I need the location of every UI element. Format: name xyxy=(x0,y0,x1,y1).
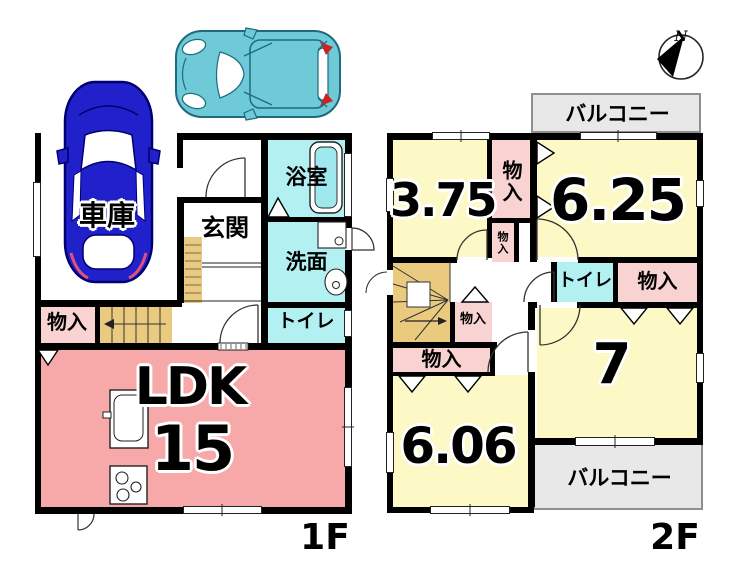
window xyxy=(344,153,352,217)
wall xyxy=(697,207,703,353)
genkan-step-strip xyxy=(184,237,202,303)
f1-stairs xyxy=(100,305,172,345)
f2-stairs xyxy=(393,262,450,342)
wall xyxy=(530,438,575,445)
label-room-625: 6.25 xyxy=(540,170,695,231)
wall xyxy=(345,250,352,310)
washroom-exterior-door xyxy=(352,228,374,250)
blue-car-illustration xyxy=(57,82,160,282)
wall xyxy=(248,343,352,350)
label-room-7: 7 xyxy=(572,336,652,395)
label-ldk-size: 15 xyxy=(122,416,262,481)
kitchen-back-door xyxy=(78,514,94,530)
wall xyxy=(528,302,535,330)
wall xyxy=(95,303,100,345)
label-room-606: 6.06 xyxy=(388,420,528,473)
window xyxy=(344,387,352,467)
wall xyxy=(35,300,182,307)
label-closet-hall-small: 物入 xyxy=(453,313,493,327)
wall xyxy=(35,133,41,182)
wall xyxy=(578,257,703,263)
wall xyxy=(530,133,537,262)
label-closet-upper-small: 物入 xyxy=(497,226,508,260)
label-room-375: 3.75 xyxy=(390,176,490,224)
compass-north-label: N xyxy=(671,30,691,45)
stairs-window-arc xyxy=(366,272,387,293)
teal-car-illustration xyxy=(176,28,340,120)
wall xyxy=(177,197,262,203)
wall xyxy=(35,257,41,514)
window xyxy=(575,437,655,446)
window xyxy=(430,506,510,514)
label-f1-closet: 物入 xyxy=(40,312,94,333)
label-bath: 浴室 xyxy=(268,166,345,188)
wall xyxy=(697,133,703,180)
wall xyxy=(268,302,345,308)
wall xyxy=(262,507,352,514)
window xyxy=(432,132,490,140)
wall xyxy=(35,507,183,514)
wall xyxy=(387,257,457,263)
label-entrance: 玄関 xyxy=(185,216,265,241)
wall xyxy=(345,217,352,228)
wall xyxy=(393,372,490,376)
wall xyxy=(577,302,703,308)
label-f1: 1F xyxy=(290,519,360,557)
wall xyxy=(387,133,432,140)
wall xyxy=(177,198,184,303)
wall xyxy=(387,133,393,178)
floor-plan-canvas: 車庫 玄関 浴室 洗面 トイレ 物入 LDK 15 1F バルコニー 3.75 … xyxy=(0,0,740,587)
entrance-door xyxy=(206,158,245,197)
wall xyxy=(345,337,352,387)
f2-toilet-door xyxy=(524,272,554,302)
wall xyxy=(492,218,530,223)
label-balcony-bottom: バルコニー xyxy=(547,467,692,489)
wall xyxy=(655,438,703,445)
window xyxy=(183,506,262,514)
label-f2: 2F xyxy=(640,519,710,557)
window xyxy=(696,353,704,383)
wall xyxy=(387,507,430,513)
label-wash: 洗面 xyxy=(268,251,345,273)
wall xyxy=(35,343,218,350)
wall xyxy=(514,223,519,262)
label-garage: 車庫 xyxy=(62,201,152,230)
label-ldk: LDK xyxy=(120,360,260,415)
label-balcony-top: バルコニー xyxy=(545,103,690,125)
window xyxy=(696,180,704,207)
wall xyxy=(510,507,534,513)
window xyxy=(580,132,657,140)
window xyxy=(33,182,41,257)
wall xyxy=(177,133,183,168)
wall xyxy=(697,383,703,445)
label-closet-east: 物入 xyxy=(618,271,697,292)
wall xyxy=(345,133,352,153)
wall xyxy=(528,372,535,507)
label-f2-toilet: トイレ xyxy=(557,272,613,291)
label-closet-west: 物入 xyxy=(393,349,490,370)
wall xyxy=(490,348,495,376)
label-closet-tall: 物入 xyxy=(501,152,521,212)
ldk-door xyxy=(220,305,258,343)
label-f1-toilet: トイレ xyxy=(266,312,346,332)
wall xyxy=(268,217,345,222)
